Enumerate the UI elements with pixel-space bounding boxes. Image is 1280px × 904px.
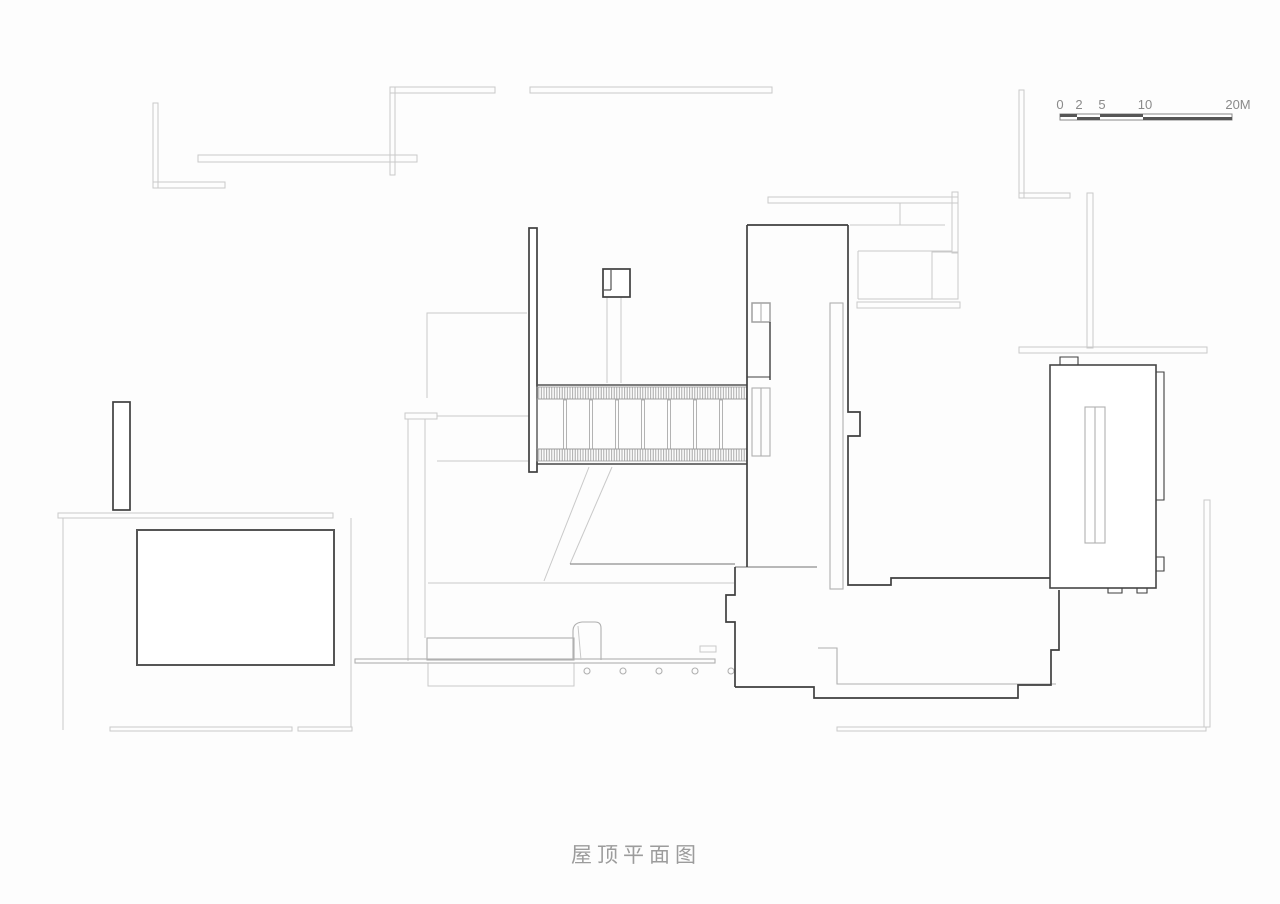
glazing-band — [537, 399, 747, 449]
roof-plan-sheet: 0 2 5 10 20M 屋顶平面图 — [0, 0, 1280, 904]
mullion — [642, 400, 645, 449]
ramp-edge — [570, 467, 612, 564]
east-building-roof — [1050, 365, 1156, 588]
hatched-band-top — [537, 387, 747, 399]
canopy-column — [692, 668, 698, 674]
mullion — [616, 400, 619, 449]
stair-cover — [573, 622, 601, 660]
upper-right-lower-roofs — [768, 192, 960, 308]
west-pavilion-roof — [137, 530, 334, 665]
glazed-link-skylight — [537, 385, 747, 464]
scale-tick-20m: 20M — [1225, 97, 1250, 112]
chimney — [603, 269, 630, 297]
main-building-outline — [726, 225, 1059, 698]
roof-plan-drawing: 0 2 5 10 20M 屋顶平面图 — [0, 0, 1280, 904]
canopy-column — [620, 668, 626, 674]
canopy-column — [728, 668, 734, 674]
scale-tick-10: 10 — [1138, 97, 1152, 112]
drawing-title: 屋顶平面图 — [571, 844, 701, 867]
linear-skylight-ladder — [830, 303, 843, 589]
scale-tick-2: 2 — [1075, 97, 1082, 112]
west-wall-slab — [113, 402, 130, 510]
canopy-column — [656, 668, 662, 674]
scale-tick-5: 5 — [1098, 97, 1105, 112]
canopy-and-lower-terrace — [355, 622, 1056, 686]
canopy-column — [584, 668, 590, 674]
solid-volumes — [113, 228, 1164, 665]
mullion — [668, 400, 671, 449]
scale-tick-0: 0 — [1056, 97, 1063, 112]
terrace-roof — [427, 638, 574, 660]
south-roof-edge — [735, 590, 1059, 698]
mullion — [720, 400, 723, 449]
mid-level-edges — [570, 564, 817, 567]
mullion — [564, 400, 567, 449]
mullion — [694, 400, 697, 449]
mullion — [590, 400, 593, 449]
freestanding-wall — [529, 228, 537, 472]
scale-bar: 0 2 5 10 20M — [1056, 97, 1250, 120]
hatched-band-bottom — [537, 449, 747, 461]
